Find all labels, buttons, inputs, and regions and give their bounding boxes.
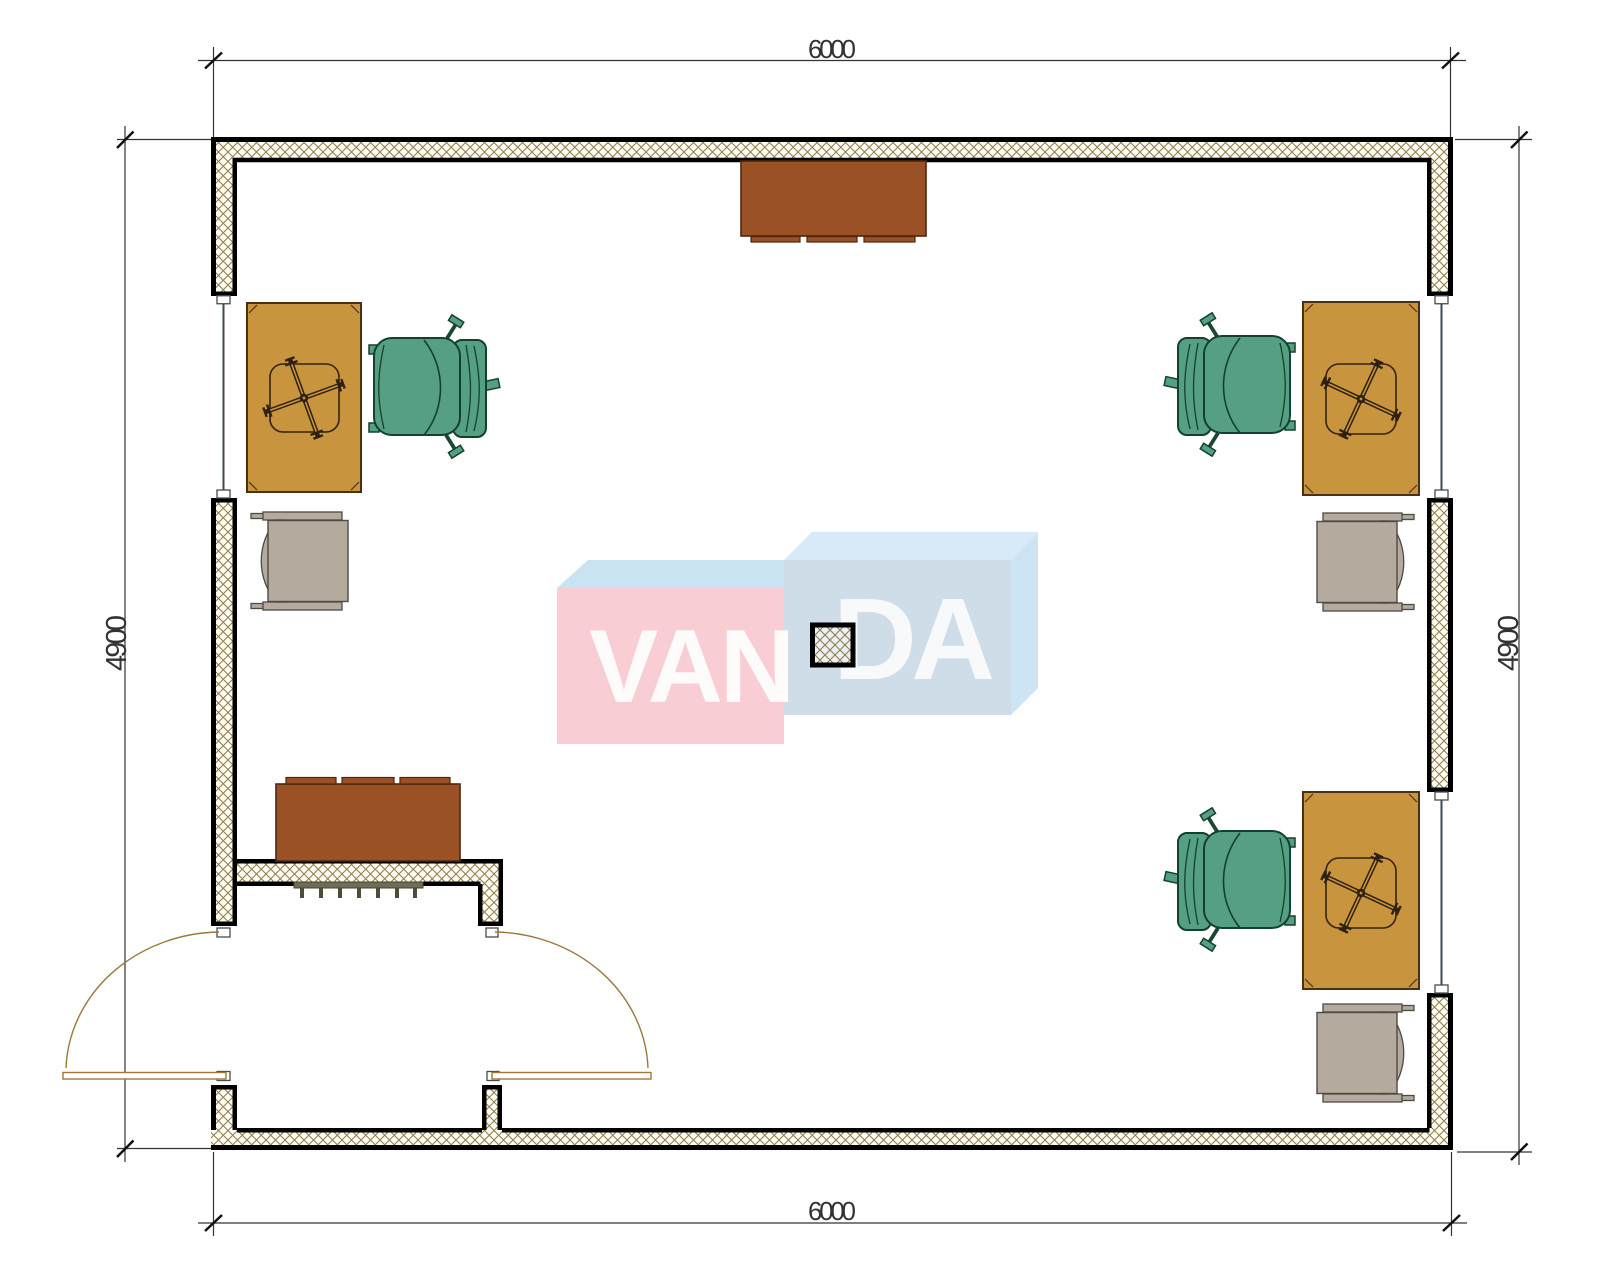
svg-text:4900: 4900	[1493, 615, 1525, 671]
svg-text:DA: DA	[833, 574, 995, 704]
svg-text:VAN: VAN	[589, 609, 795, 725]
svg-text:4900: 4900	[101, 615, 133, 671]
svg-text:6000: 6000	[808, 34, 856, 64]
svg-text:6000: 6000	[808, 1196, 856, 1226]
